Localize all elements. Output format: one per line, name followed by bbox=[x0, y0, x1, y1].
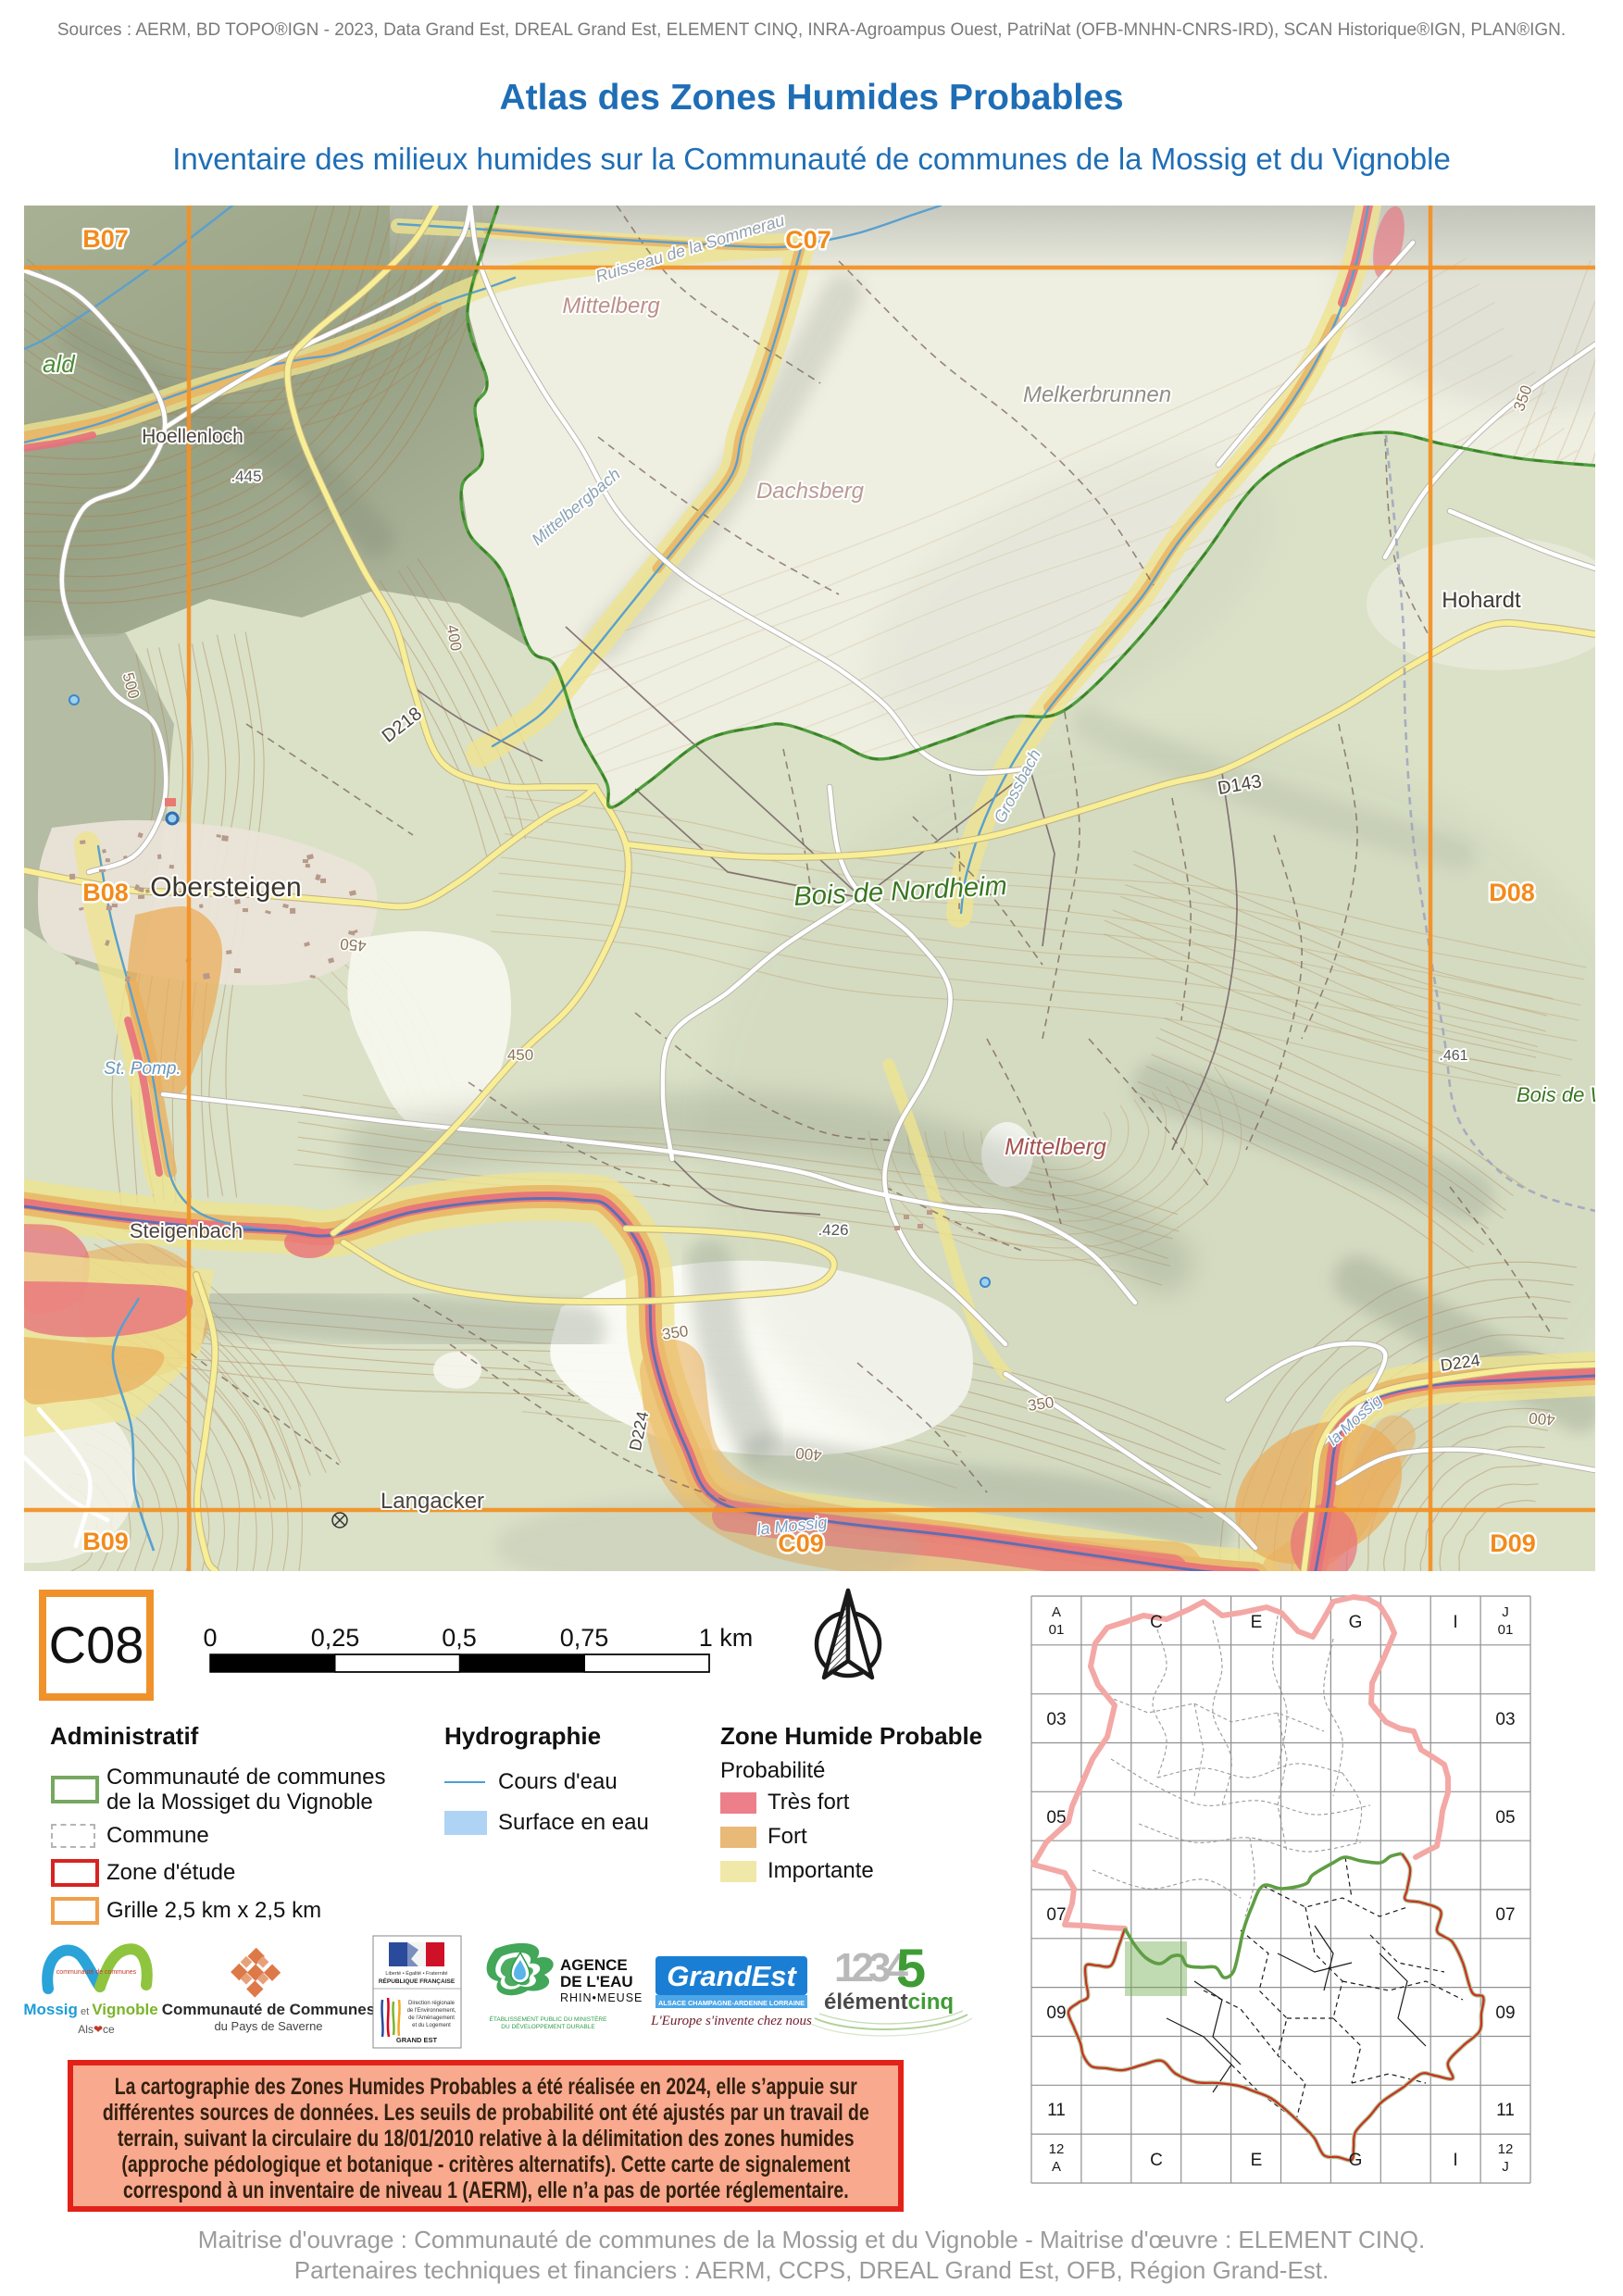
svg-text:D08: D08 bbox=[1489, 879, 1535, 906]
svg-text:400: 400 bbox=[795, 1444, 823, 1464]
svg-text:C: C bbox=[1150, 1613, 1163, 1632]
svg-text:D09: D09 bbox=[1490, 1529, 1536, 1557]
svg-text:.445: .445 bbox=[231, 468, 261, 485]
svg-text:12: 12 bbox=[1049, 2141, 1065, 2157]
svg-text:0,75: 0,75 bbox=[560, 1624, 609, 1652]
svg-text:Melkerbrunnen: Melkerbrunnen bbox=[1023, 382, 1171, 407]
svg-text:Langacker: Langacker bbox=[381, 1489, 484, 1514]
svg-text:450: 450 bbox=[507, 1046, 533, 1064]
svg-text:Liberté • Égalité • Fraternité: Liberté • Égalité • Fraternité bbox=[385, 1970, 447, 1977]
svg-text:RÉPUBLIQUE FRANÇAISE: RÉPUBLIQUE FRANÇAISE bbox=[379, 1977, 456, 1985]
svg-text:Als❤ce: Als❤ce bbox=[78, 2023, 115, 2036]
svg-text:Direction régionale: Direction régionale bbox=[408, 2001, 456, 2006]
svg-text:de l'Environnement,: de l'Environnement, bbox=[407, 2008, 456, 2014]
svg-text:RHIN•MEUSE: RHIN•MEUSE bbox=[560, 1991, 643, 2004]
svg-text:Mossig et Vignoble: Mossig et Vignoble bbox=[23, 2001, 157, 2018]
svg-text:E: E bbox=[1251, 1613, 1263, 1632]
svg-text:0,25: 0,25 bbox=[311, 1624, 360, 1652]
svg-text:450: 450 bbox=[340, 935, 368, 955]
svg-text:03: 03 bbox=[1046, 1710, 1066, 1729]
svg-text:A: A bbox=[1052, 2159, 1061, 2175]
svg-text:ÉTABLISSEMENT PUBLIC DU MINIST: ÉTABLISSEMENT PUBLIC DU MINISTÈRE bbox=[490, 2015, 608, 2023]
svg-text:C: C bbox=[1150, 2151, 1163, 2170]
svg-text:350: 350 bbox=[661, 1322, 690, 1343]
svg-text:G: G bbox=[1349, 1613, 1363, 1632]
svg-text:Hohardt: Hohardt bbox=[1442, 588, 1521, 613]
svg-text:Hoellenloch: Hoellenloch bbox=[142, 426, 243, 447]
svg-text:élémentcinq: élémentcinq bbox=[824, 1990, 954, 2015]
svg-text:01: 01 bbox=[1498, 1622, 1514, 1638]
svg-text:GrandEst: GrandEst bbox=[667, 1960, 797, 1992]
svg-text:1 km: 1 km bbox=[699, 1624, 754, 1652]
svg-text:A: A bbox=[1052, 1604, 1061, 1620]
svg-text:09: 09 bbox=[1495, 2003, 1515, 2023]
svg-text:400: 400 bbox=[1529, 1409, 1556, 1429]
svg-text:C07: C07 bbox=[785, 226, 831, 254]
svg-text:ALSACE CHAMPAGNE-ARDENNE LORRA: ALSACE CHAMPAGNE-ARDENNE LORRAINE bbox=[658, 1999, 805, 2007]
svg-text:DU DÉVELOPPEMENT DURABLE: DU DÉVELOPPEMENT DURABLE bbox=[501, 2022, 595, 2030]
svg-text:12: 12 bbox=[1498, 2141, 1514, 2157]
svg-text:05: 05 bbox=[1046, 1808, 1066, 1828]
svg-text:I: I bbox=[1453, 1613, 1457, 1632]
svg-text:J: J bbox=[1502, 2159, 1509, 2175]
svg-text:350: 350 bbox=[1027, 1393, 1055, 1415]
svg-text:communauté de communes: communauté de communes bbox=[56, 1969, 137, 1976]
svg-text:11: 11 bbox=[1496, 2101, 1515, 2120]
svg-text:J: J bbox=[1502, 1604, 1509, 1620]
svg-text:Mittelberg: Mittelberg bbox=[1005, 1134, 1106, 1160]
svg-text:07: 07 bbox=[1046, 1905, 1066, 1925]
svg-text:DE L'EAU: DE L'EAU bbox=[560, 1973, 633, 1990]
svg-text:.426: .426 bbox=[818, 1221, 848, 1239]
svg-text:de l'Aménagement: de l'Aménagement bbox=[408, 2015, 455, 2021]
svg-text:07: 07 bbox=[1495, 1905, 1515, 1925]
svg-text:L'Europe s'invente chez nous: L'Europe s'invente chez nous bbox=[650, 2014, 812, 2028]
svg-text:.461: .461 bbox=[1439, 1048, 1467, 1064]
svg-text:05: 05 bbox=[1495, 1808, 1515, 1828]
svg-text:AGENCE: AGENCE bbox=[560, 1956, 628, 1974]
svg-text:E: E bbox=[1251, 2151, 1263, 2170]
svg-text:11: 11 bbox=[1047, 2101, 1066, 2120]
svg-text:09: 09 bbox=[1046, 2003, 1066, 2023]
svg-text:Steigenbach: Steigenbach bbox=[130, 1219, 243, 1242]
svg-text:Communauté de Communes: Communauté de Communes bbox=[162, 2001, 375, 2018]
svg-text:St. Pomp.: St. Pomp. bbox=[104, 1059, 181, 1079]
svg-text:G: G bbox=[1349, 2151, 1363, 2170]
svg-text:B09: B09 bbox=[82, 1528, 129, 1555]
svg-text:GRAND EST: GRAND EST bbox=[396, 2036, 438, 2044]
svg-text:03: 03 bbox=[1495, 1710, 1515, 1729]
svg-text:Dachsberg: Dachsberg bbox=[756, 479, 865, 504]
svg-text:I: I bbox=[1453, 2151, 1457, 2170]
svg-text:01: 01 bbox=[1049, 1622, 1065, 1638]
svg-text:B07: B07 bbox=[82, 225, 129, 253]
svg-text:Obersteigen: Obersteigen bbox=[150, 872, 301, 903]
svg-text:du Pays de Saverne: du Pays de Saverne bbox=[214, 2019, 322, 2033]
svg-text:et du Logement: et du Logement bbox=[412, 2023, 451, 2028]
svg-text:ald: ald bbox=[43, 350, 76, 378]
svg-text:0: 0 bbox=[203, 1624, 217, 1652]
svg-text:Bois de Wo: Bois de Wo bbox=[1517, 1083, 1595, 1106]
svg-text:0,5: 0,5 bbox=[442, 1624, 477, 1652]
svg-text:Mittelberg: Mittelberg bbox=[562, 293, 660, 318]
svg-text:B08: B08 bbox=[82, 879, 129, 906]
